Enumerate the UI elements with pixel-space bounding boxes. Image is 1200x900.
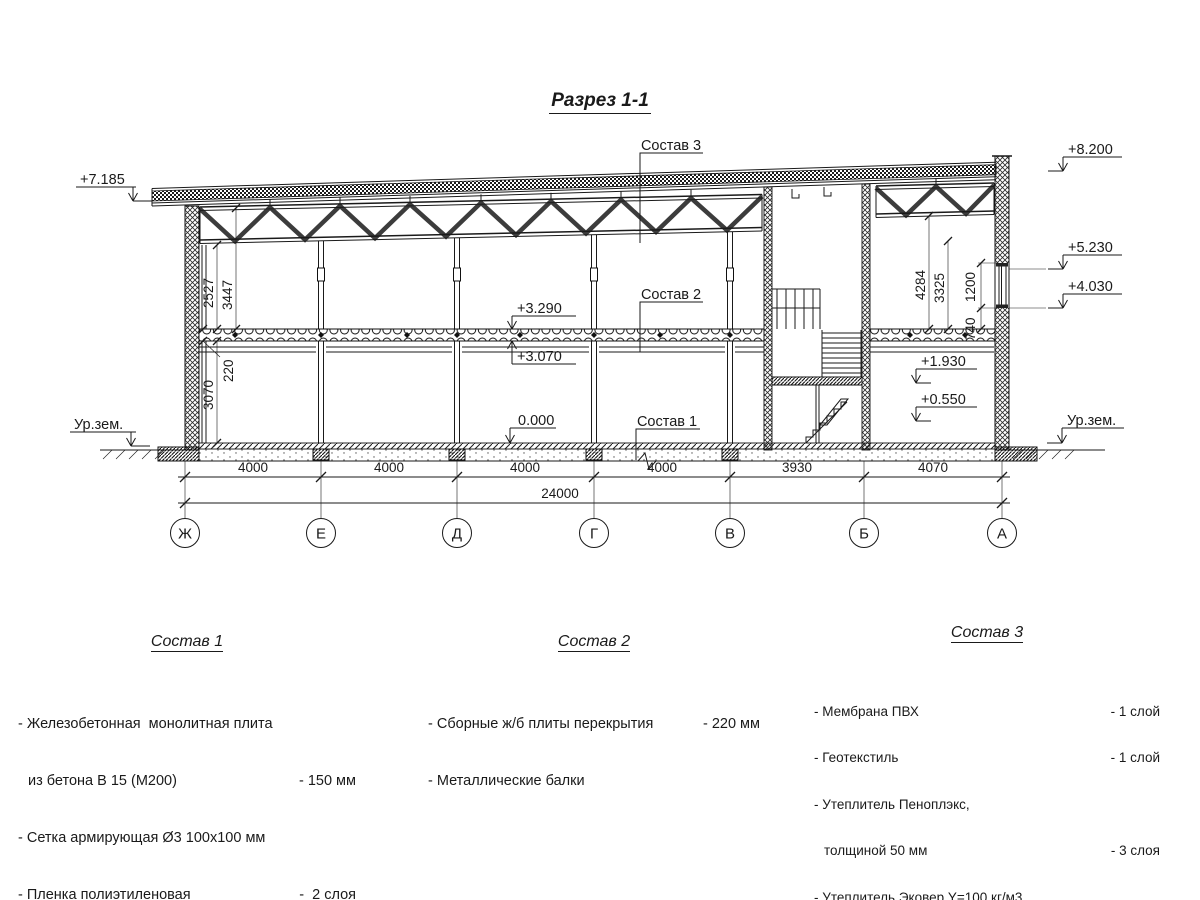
hanger-hook-icon xyxy=(792,189,799,198)
elevation-label: +1.930 xyxy=(921,354,966,370)
list-item: - Металлические балки xyxy=(428,772,760,791)
axis-label: Ж xyxy=(178,526,192,543)
list-title: Состав 2 xyxy=(428,632,760,651)
axis-label: Б xyxy=(859,526,869,543)
composition-list-2: Состав 2 - Сборные ж/б плиты перекрытия-… xyxy=(428,594,760,829)
list-item: - Утеплитель Эковер Y=100 кг/м3, xyxy=(814,890,1160,900)
vdim-label: 1200 xyxy=(963,272,978,302)
drawing-sheet: Разрез 1-1 xyxy=(0,0,1200,900)
vdim-label: 740 xyxy=(963,317,978,340)
list-item: из бетона В 15 (М200)- 150 мм xyxy=(18,772,356,791)
list-item: - Сетка армирующая Ø3 100x100 мм xyxy=(18,829,356,848)
section-drawing: Состав 3 Состав 2 Состав 1 +7.185 Ур.зем… xyxy=(0,0,1200,578)
right-wall-parapet xyxy=(992,156,1012,450)
window xyxy=(996,263,1009,308)
list-item: - Сборные ж/б плиты перекрытия- 220 мм xyxy=(428,715,760,734)
composition-list-3: Состав 3 - Мембрана ПВХ- 1 слой - Геотек… xyxy=(814,594,1160,900)
elevation-label: +3.070 xyxy=(517,349,562,365)
hdim-label: 4070 xyxy=(918,460,948,475)
hanger-hook-icon xyxy=(824,187,831,196)
list-item: толщиной 50 мм- 3 слоя xyxy=(814,843,1160,859)
vdim-label: 220 xyxy=(221,359,236,382)
list-title: Состав 3 xyxy=(814,625,1160,641)
vdim-label: 2527 xyxy=(201,278,216,308)
hdim-label: 4000 xyxy=(647,460,677,475)
callout-sostav3: Состав 3 xyxy=(641,138,701,154)
elevation-label: +4.030 xyxy=(1068,279,1113,295)
total-dim-label: 24000 xyxy=(541,486,579,501)
list-item: - Пленка полиэтиленовая- 2 слоя xyxy=(18,886,356,900)
axis-label: Е xyxy=(316,526,326,543)
vdim-label: 3447 xyxy=(220,280,235,310)
ground-level-label: Ур.зем. xyxy=(74,417,123,433)
axis-label: Г xyxy=(590,526,598,543)
composition-list-1: Состав 1 - Железобетонная монолитная пли… xyxy=(18,594,356,900)
stair-shaft-walls xyxy=(764,184,870,450)
vdim-label: 3070 xyxy=(201,380,216,410)
elevation-label: 0.000 xyxy=(518,413,554,429)
elevation-label: +8.200 xyxy=(1068,142,1113,158)
vdim-label: 3325 xyxy=(932,273,947,303)
axis-label: Д xyxy=(452,526,462,543)
list-item: - Железобетонная монолитная плита xyxy=(18,715,356,734)
hdim-label: 4000 xyxy=(374,460,404,475)
dimension-chain: 4000 4000 4000 4000 3930 4070 24000 xyxy=(178,460,1010,518)
axis-label: А xyxy=(997,526,1007,543)
elevation-label: +5.230 xyxy=(1068,240,1113,256)
elevation-label: +0.550 xyxy=(921,392,966,408)
axis-label: В xyxy=(725,526,735,543)
list-title: Состав 1 xyxy=(18,632,356,651)
left-wall xyxy=(185,206,199,450)
ground-level-label: Ур.зем. xyxy=(1067,413,1116,429)
vdim-label: 4284 xyxy=(913,269,928,300)
elevation-label: +3.290 xyxy=(517,301,562,317)
truss-right xyxy=(876,178,994,218)
hdim-label: 3930 xyxy=(782,460,812,475)
axis-bubbles: Ж Е Д Г В Б А xyxy=(171,519,1017,548)
callout-sostav1: Состав 1 xyxy=(637,414,697,430)
list-item: - Утеплитель Пеноплэкс, xyxy=(814,797,1160,813)
elevation-label: +7.185 xyxy=(80,172,125,188)
callout-sostav2: Состав 2 xyxy=(641,287,701,303)
list-item: - Геотекстиль- 1 слой xyxy=(814,750,1160,766)
hdim-label: 4000 xyxy=(238,460,268,475)
truss-left xyxy=(200,190,762,244)
staircase xyxy=(772,289,862,443)
list-item: - Мембрана ПВХ- 1 слой xyxy=(814,704,1160,720)
hdim-label: 4000 xyxy=(510,460,540,475)
